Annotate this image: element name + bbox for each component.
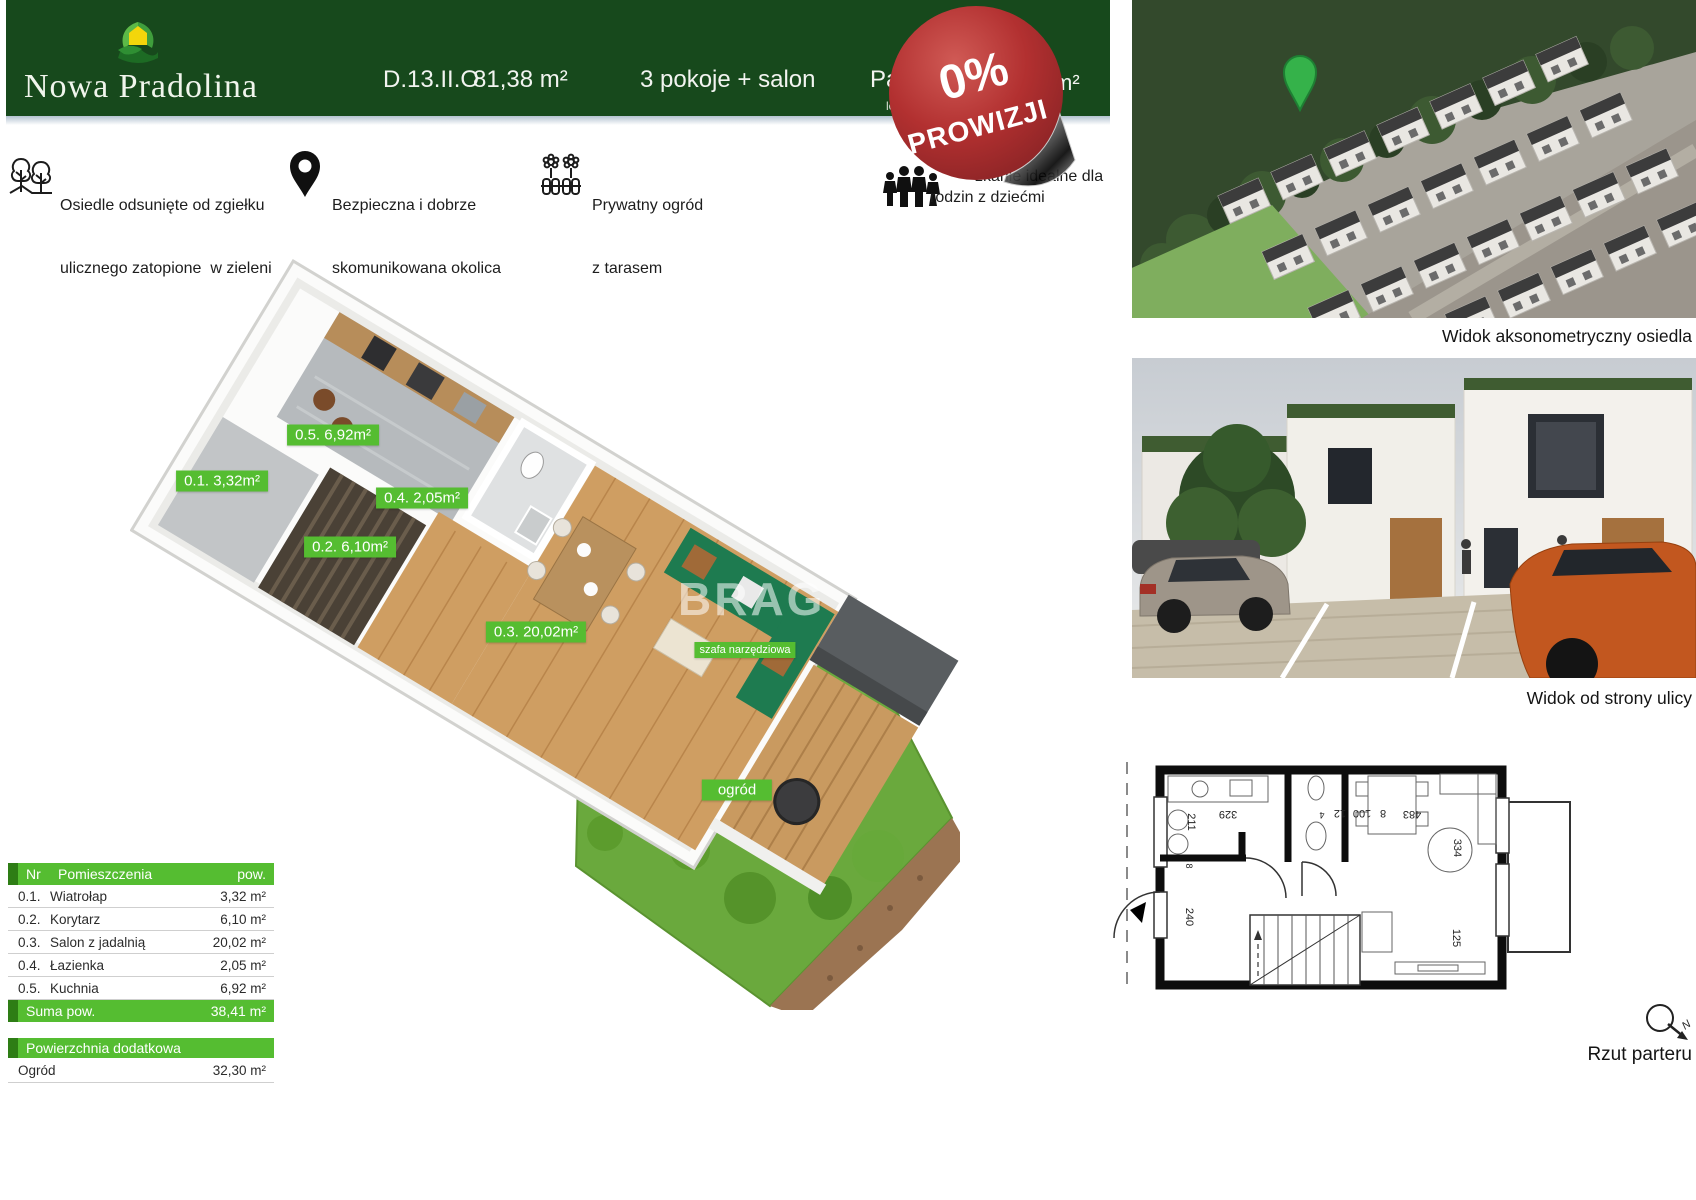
room-table: Nr Pomieszczenia pow. 0.1. Wiatrołap 3,3… [8, 863, 274, 1022]
feature-2-line1: Bezpieczna i dobrze [332, 195, 501, 216]
row-name: Łazienka [50, 958, 220, 973]
feature-3-line1: Prywatny ogród [592, 195, 703, 216]
flyer-page: Nowa Pradolina D.13.II.O 81,38 m² 3 poko… [0, 0, 1696, 1200]
col-nr: Nr [26, 866, 58, 882]
table-sum-row: Suma pow. 38,41 m² [8, 1000, 274, 1022]
dim-483: 483 [1403, 808, 1421, 820]
building-strip [132, 261, 960, 931]
row-name: Korytarz [50, 912, 220, 927]
dim-8: 8 [1380, 807, 1386, 819]
room-label-corridor: 0.2. 6,10m² [304, 537, 396, 558]
sum-value: 38,41 m² [211, 1003, 266, 1019]
dim-329: 329 [1219, 808, 1237, 820]
extra-row: Ogród 32,30 m² [8, 1058, 274, 1083]
dim-12: 12 [1334, 807, 1346, 819]
axonometric-render-graphic [1132, 0, 1696, 318]
header-unit-rooms: 3 pokoje + salon [640, 66, 815, 94]
technical-floor-plan: 329 211 4 12 100 8 483 8 334 240 125 [1050, 740, 1610, 1000]
dim-211: 211 [1185, 813, 1197, 831]
street-caption: Widok od strony ulicy [1136, 688, 1692, 709]
dim-334: 334 [1451, 839, 1463, 857]
row-nr: 0.1. [18, 889, 50, 904]
row-area: 6,10 m² [220, 912, 266, 927]
house-middle [1287, 404, 1455, 618]
garden-label: ogród [702, 780, 772, 801]
col-name: Pomieszczenia [58, 866, 237, 882]
row-nr: 0.5. [18, 981, 50, 996]
room-label-entry: 0.1. 3,32m² [176, 471, 268, 492]
trees-icon [8, 152, 54, 198]
pin-icon [288, 150, 322, 198]
table-header-row: Nr Pomieszczenia pow. [8, 863, 274, 885]
feature-1-line1: Osiedle odsunięte od zgiełku [60, 195, 272, 216]
compass-north-icon: N [1642, 1002, 1696, 1046]
row-area: 6,92 m² [220, 981, 266, 996]
street-view-render [1132, 358, 1696, 678]
agency-watermark: BRAG [678, 572, 825, 626]
extra-header-label: Powierzchnia dodatkowa [26, 1040, 181, 1056]
street-view-graphic [1132, 358, 1696, 678]
extra-area-table: Powierzchnia dodatkowa Ogród 32,30 m² [8, 1038, 274, 1083]
entrance-arrow [1130, 902, 1146, 923]
extra-header-row: Powierzchnia dodatkowa [8, 1038, 274, 1058]
zero-commission-badge: 0% PROWIZJI [878, 0, 1080, 206]
row-nr: 0.4. [18, 958, 50, 973]
plan-terrace [1508, 802, 1570, 952]
room-label-kitchen: 0.5. 6,92m² [287, 425, 379, 446]
row-name: Kuchnia [50, 981, 220, 996]
garden-icon [538, 152, 584, 198]
shed-label: szafa narzędziowa [694, 642, 795, 658]
dim-100: 100 [1353, 807, 1371, 819]
compass-letter: N [1680, 1018, 1693, 1032]
brand-name: Nowa Pradolina [10, 68, 272, 106]
dim-4: 4 [1319, 810, 1324, 820]
row-nr: 0.2. [18, 912, 50, 927]
table-row: 0.4. Łazienka 2,05 m² [8, 954, 274, 977]
table-row: 0.2. Korytarz 6,10 m² [8, 908, 274, 931]
car-orange [1510, 542, 1696, 678]
col-area: pow. [237, 866, 266, 882]
sum-label: Suma pow. [26, 1003, 95, 1019]
row-name: Salon z jadalnią [50, 935, 213, 950]
table-row: 0.3. Salon z jadalnią 20,02 m² [8, 931, 274, 954]
row-name: Wiatrołap [50, 889, 220, 904]
plan-caption: Rzut parteru [1136, 1044, 1692, 1066]
row-area: 2,05 m² [220, 958, 266, 973]
brand-logo-icon [114, 18, 162, 66]
table-row: 0.5. Kuchnia 6,92 m² [8, 977, 274, 1000]
axon-caption: Widok aksonometryczny osiedla [1136, 326, 1692, 347]
row-area: 20,02 m² [213, 935, 266, 950]
table-row: 0.1. Wiatrołap 3,32 m² [8, 885, 274, 908]
row-area: 3,32 m² [220, 889, 266, 904]
extra-row-area: 32,30 m² [213, 1063, 266, 1078]
dim-8b: 8 [1184, 863, 1194, 868]
header-unit-area: 81,38 m² [473, 66, 568, 94]
plan-stairs [1250, 915, 1360, 985]
axonometric-render [1132, 0, 1696, 318]
dim-125: 125 [1450, 929, 1462, 947]
extra-row-name: Ogród [18, 1063, 56, 1078]
header-unit-id: D.13.II.O [383, 66, 479, 94]
room-label-bathroom: 0.4. 2,05m² [376, 488, 468, 509]
row-nr: 0.3. [18, 935, 50, 950]
dim-240: 240 [1183, 908, 1195, 926]
room-label-salon: 0.3. 20,02m² [486, 622, 586, 643]
